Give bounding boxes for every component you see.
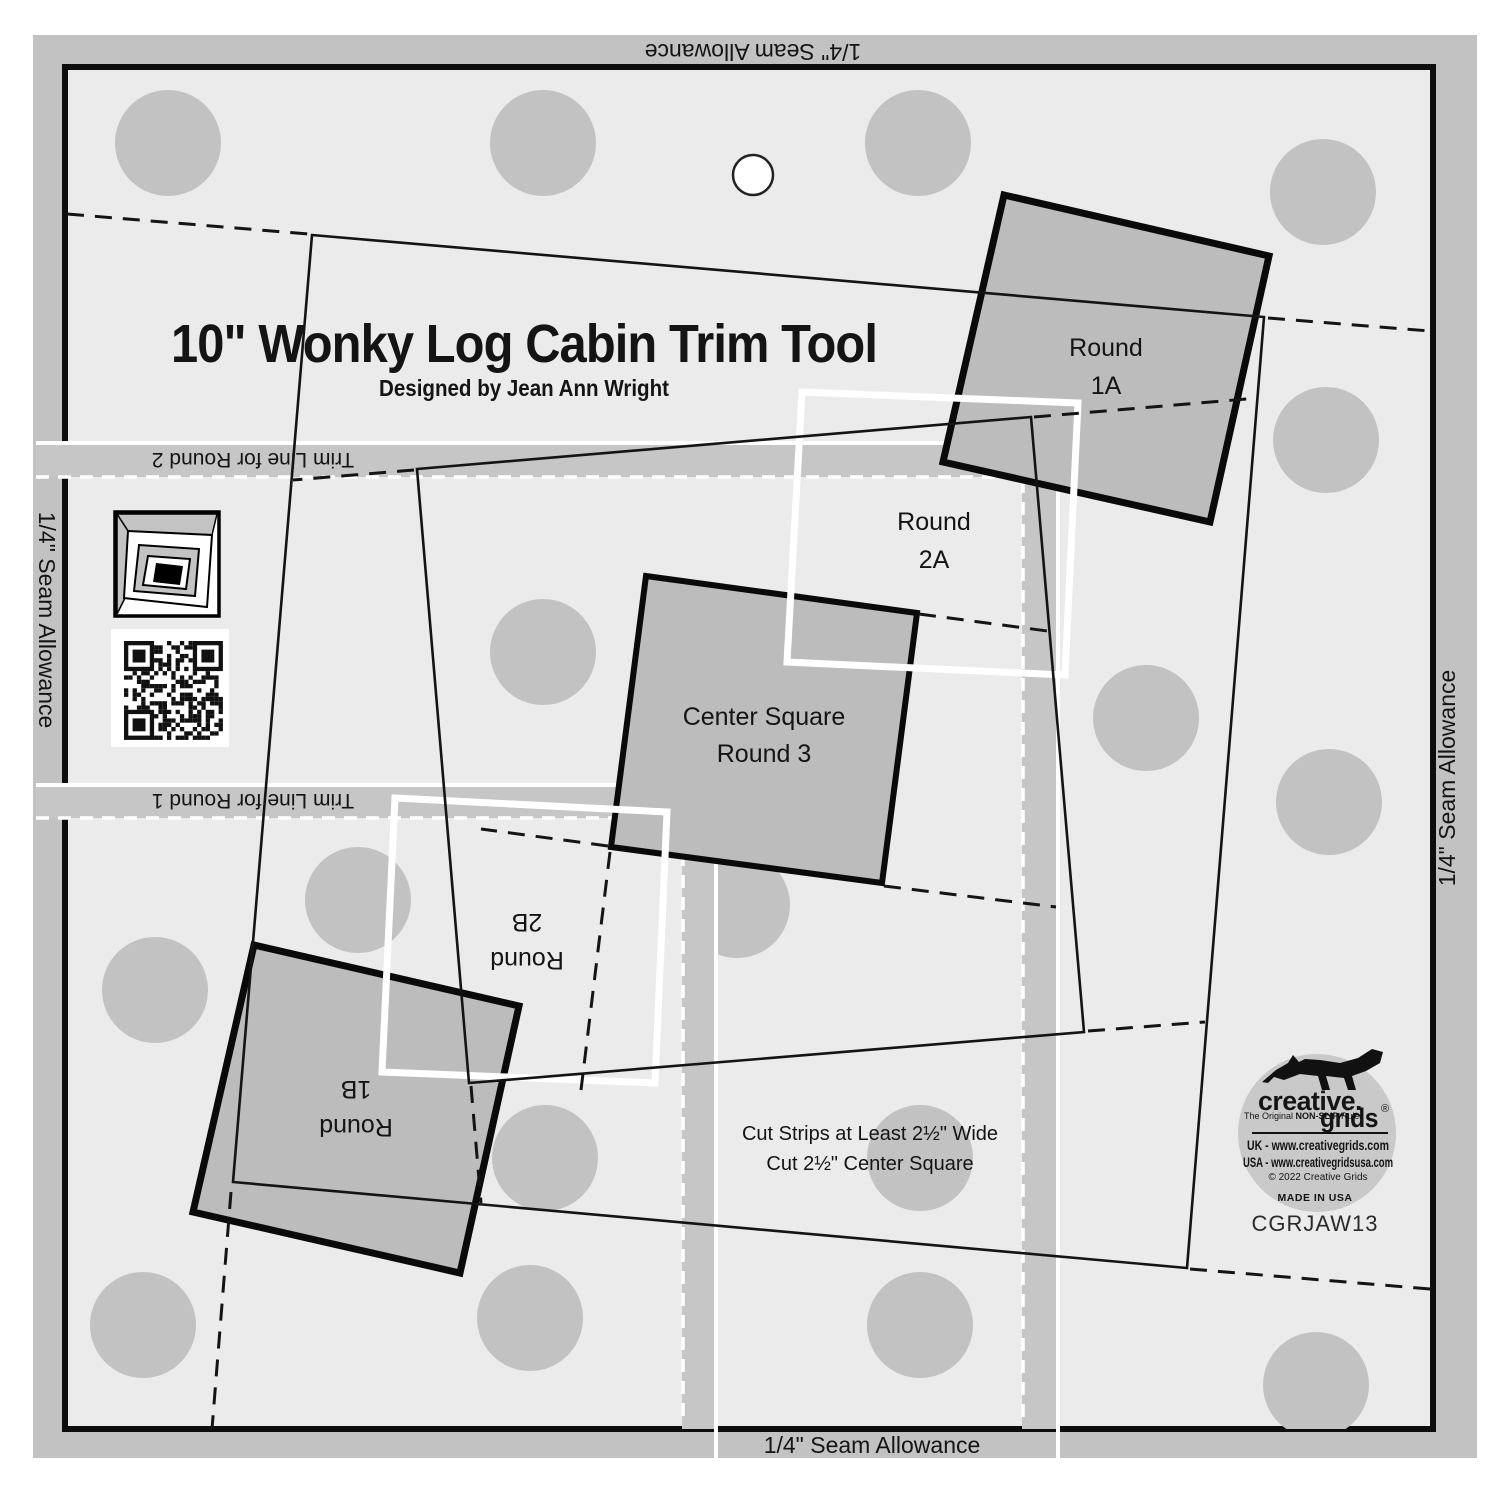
round-1b-label-line1: Round	[319, 1113, 393, 1141]
made-in-usa: MADE IN USA	[1278, 1192, 1353, 1204]
round-2b-label-line2: 2B	[512, 908, 543, 936]
page-title: 10" Wonky Log Cabin Trim Tool	[171, 314, 877, 374]
center-square-label-line1: Center Square	[683, 703, 846, 731]
logo-brand-line2: grids	[1320, 1103, 1378, 1133]
instructions-line1: Cut Strips at Least 2½" Wide	[742, 1123, 998, 1145]
seam-allowance-right: 1/4" Seam Allowance	[1434, 670, 1460, 887]
trim-band-round2-vertical	[1022, 477, 1058, 1429]
log-cabin-block-icon	[115, 512, 219, 616]
round-2a-label-line1: Round	[897, 508, 971, 536]
logo-uk-url: UK - www.creativegrids.com	[1247, 1137, 1389, 1153]
round-1a-label-line1: Round	[1069, 334, 1143, 362]
round-1a-label-line2: 1A	[1091, 372, 1122, 400]
round-1b-square	[193, 945, 519, 1273]
round-1b-label-line2: 1B	[341, 1075, 372, 1103]
logo-usa-url: USA - www.creativegridsusa.com	[1243, 1154, 1393, 1170]
seam-allowance-bottom: 1/4" Seam Allowance	[764, 1432, 981, 1458]
instructions-line2: Cut 2½" Center Square	[766, 1153, 973, 1175]
trim-band-round1-vertical	[682, 818, 716, 1429]
product-code: CGRJAW13	[1252, 1211, 1379, 1236]
logo-copyright: © 2022 Creative Grids	[1268, 1172, 1367, 1183]
qr-code-icon	[111, 629, 229, 747]
seam-allowance-left: 1/4" Seam Allowance	[34, 512, 60, 729]
trim-line-round1-label: Trim Line for Round 1	[152, 789, 354, 812]
ruler-product-image: creative. The Original NON-SLIP Ruler gr…	[0, 0, 1500, 1500]
round-2b-label-line1: Round	[490, 946, 564, 974]
hang-hole	[733, 155, 773, 195]
registered-mark: ®	[1381, 1103, 1389, 1115]
center-square-label-line2: Round 3	[717, 740, 812, 768]
seam-allowance-top: 1/4" Seam Allowance	[645, 39, 862, 65]
designer-credit: Designed by Jean Ann Wright	[379, 375, 669, 401]
trim-line-round2-label: Trim Line for Round 2	[152, 448, 354, 471]
wonky-log-cabin-trim-tool: creative. The Original NON-SLIP Ruler gr…	[0, 0, 1500, 1500]
round-2a-label-line2: 2A	[919, 546, 950, 574]
